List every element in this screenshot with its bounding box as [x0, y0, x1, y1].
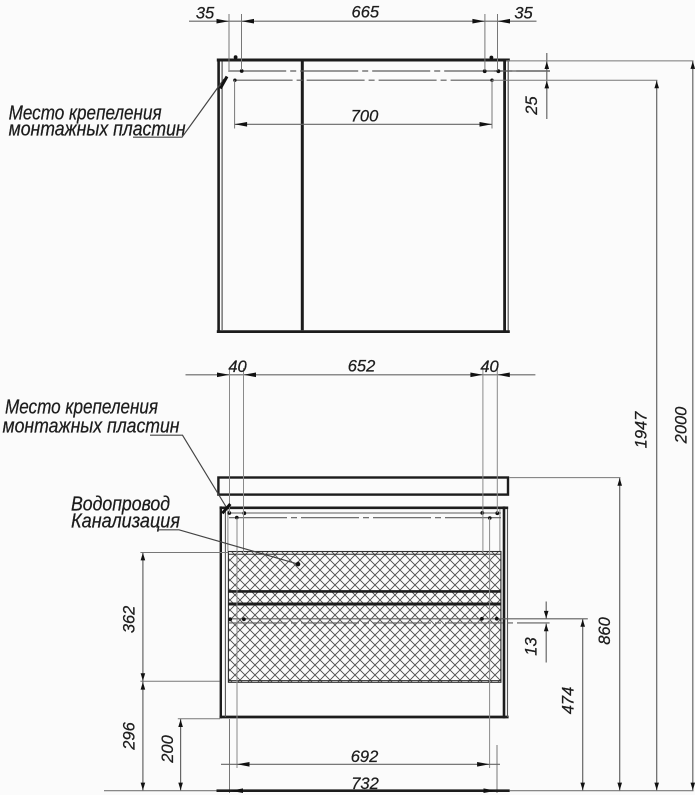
svg-text:692: 692 [351, 748, 379, 766]
svg-text:40: 40 [480, 358, 499, 376]
svg-text:1947: 1947 [632, 411, 650, 449]
svg-text:860: 860 [596, 616, 614, 644]
svg-text:700: 700 [351, 107, 379, 125]
svg-text:монтажных пластин: монтажных пластин [3, 416, 180, 438]
svg-text:13: 13 [523, 637, 541, 656]
svg-text:2000: 2000 [672, 406, 690, 445]
svg-text:732: 732 [351, 775, 379, 793]
svg-text:40: 40 [228, 358, 247, 376]
svg-text:296: 296 [121, 721, 139, 750]
svg-text:665: 665 [352, 4, 380, 22]
svg-text:35: 35 [196, 4, 215, 22]
svg-text:474: 474 [560, 687, 578, 715]
svg-text:652: 652 [348, 358, 376, 376]
svg-text:25: 25 [523, 96, 541, 116]
svg-text:35: 35 [514, 5, 533, 23]
svg-text:362: 362 [121, 606, 139, 634]
svg-text:200: 200 [159, 734, 177, 763]
